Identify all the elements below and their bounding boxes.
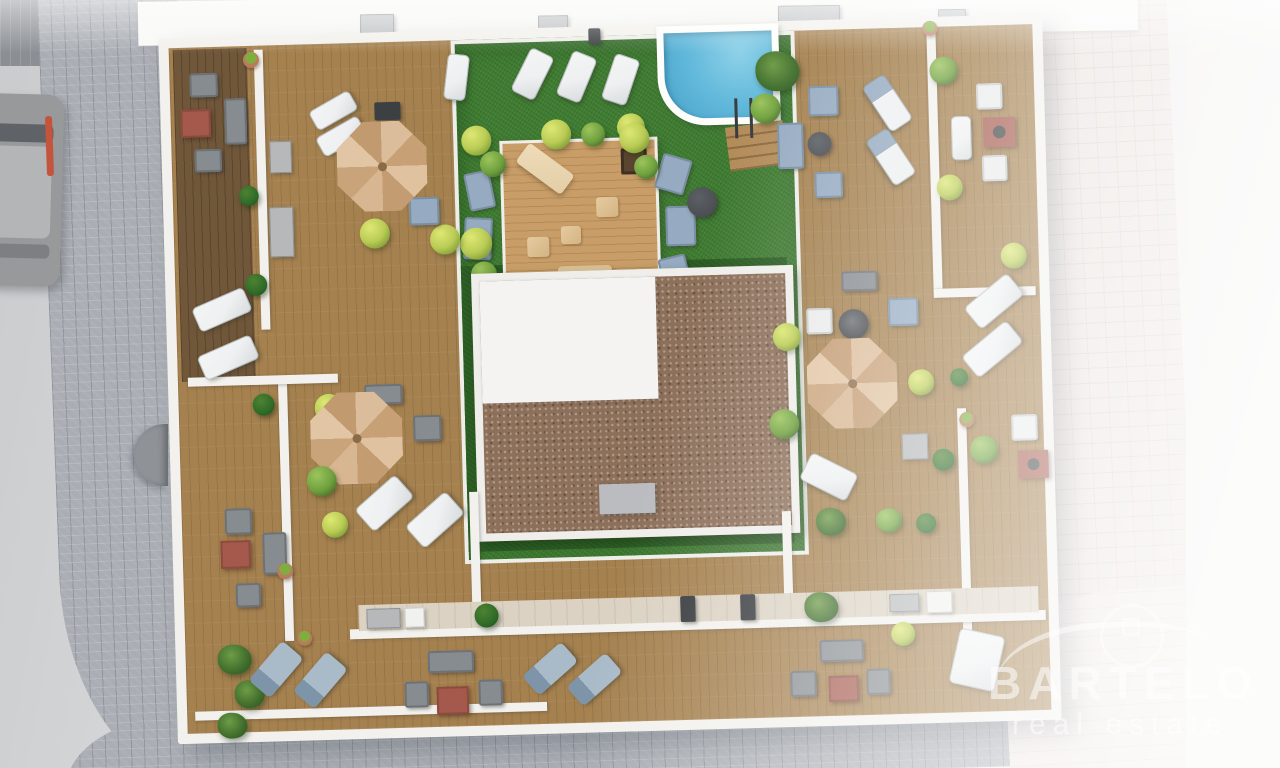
armchair <box>1011 414 1038 441</box>
street-right <box>1186 0 1280 768</box>
roof-bulkhead <box>599 483 656 515</box>
garden-armchair <box>808 86 839 117</box>
floor-cushion <box>596 197 619 218</box>
fire-table <box>983 117 1016 148</box>
coffee-table <box>828 675 859 702</box>
outdoor-kitchen <box>269 141 292 174</box>
lawn-lamp <box>588 28 600 44</box>
garden-armchair <box>409 197 440 226</box>
sofa <box>777 123 804 170</box>
armchair <box>236 583 262 608</box>
car-rear-window <box>0 243 50 259</box>
armchair <box>478 679 503 706</box>
outdoor-counter <box>269 207 294 258</box>
armchair <box>976 83 1003 110</box>
white-roof-section <box>479 277 658 404</box>
armchair <box>413 415 442 442</box>
sofa <box>819 639 864 662</box>
armchair <box>404 681 429 708</box>
bistro-table <box>374 102 400 121</box>
armchair <box>806 308 833 335</box>
sofa <box>428 650 475 673</box>
garden-armchair <box>888 297 919 326</box>
armchair <box>982 155 1008 182</box>
armchair <box>224 508 252 535</box>
rooftop-building <box>158 14 1061 744</box>
closed-parasol <box>740 594 756 620</box>
closed-parasol <box>680 596 696 622</box>
utility-box <box>366 608 401 629</box>
car-roof <box>0 145 52 239</box>
utility-box <box>902 433 929 460</box>
parked-car <box>0 93 64 287</box>
outdoor-sofa <box>951 116 972 161</box>
sofa <box>224 98 247 145</box>
armchair <box>790 670 817 697</box>
armchair <box>194 149 222 173</box>
coffee-table <box>220 540 251 569</box>
coffee-table <box>180 109 211 138</box>
sofa <box>841 271 878 292</box>
floor-cushion <box>527 237 550 258</box>
utility-box <box>889 593 919 612</box>
armchair <box>866 668 891 695</box>
floor-cushion <box>561 226 581 245</box>
fire-table <box>1018 450 1049 479</box>
coffee-table <box>437 686 470 715</box>
garden-armchair <box>814 171 843 198</box>
aerial-3d-render: BARTELO real estate <box>0 0 1280 768</box>
utility-box <box>926 591 953 614</box>
utility-box <box>404 607 425 628</box>
palm-plant <box>217 712 248 739</box>
armchair <box>189 73 218 98</box>
deck-lounger <box>515 142 574 195</box>
